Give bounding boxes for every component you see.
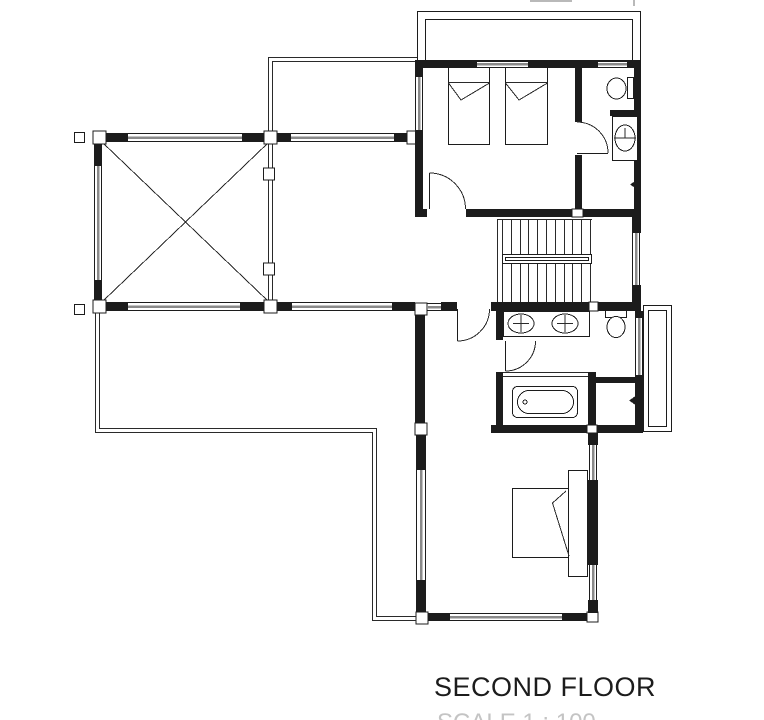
twin-bed-1 [449,68,490,145]
window-right-upper [590,445,597,480]
window-stair-right [633,233,640,285]
bedroom-bottom [416,433,598,624]
window-bottom [450,614,562,621]
window-left [417,470,426,580]
door-swing-marker [629,395,637,406]
bedroom-door [430,173,466,209]
window-top [291,134,394,142]
terrace-roof-outline [96,313,417,621]
stairs [497,217,641,302]
landing-corridor [415,302,490,435]
double-bed [513,471,588,577]
plan-scale-note-cropped: SCALE 1 : 100 [437,709,607,720]
window-top [128,134,242,142]
vanity-sink [613,117,638,161]
toilet [607,78,634,100]
top-edge-cropped-marks [530,0,635,6]
balcony-parapet-top [418,12,641,62]
bedroom-top [415,60,641,217]
double-vanity [504,312,590,337]
hallway [277,131,420,311]
toilet [606,311,627,338]
bathroom-door [506,341,536,371]
window-corridor-top [427,304,441,311]
floor-plan-sheet: SECOND FLOOR SCALE 1 : 100 [0,0,764,720]
window-right-lower [590,565,597,600]
open-to-below-room [93,131,277,313]
main-bathroom [491,302,643,433]
twin-bed-2 [506,68,548,145]
plan-title: SECOND FLOOR [430,672,660,703]
bathtub [513,387,578,418]
window-bottom [292,303,392,311]
corridor-door [458,309,490,341]
void-railing [264,144,275,300]
window-bottom [128,303,240,311]
roof-outline-upper [269,58,418,132]
floor-plan-drawing [0,0,764,720]
ensuite-door [577,122,608,154]
grid-markers [75,133,85,315]
window-left [95,166,102,280]
window-left [416,77,423,130]
window-bath-right [636,318,643,375]
ensuite-bathroom [607,78,638,191]
balcony-right [644,306,672,432]
void-x-mark [103,143,268,301]
stair-railing [503,255,592,264]
tub-partition [503,373,588,377]
